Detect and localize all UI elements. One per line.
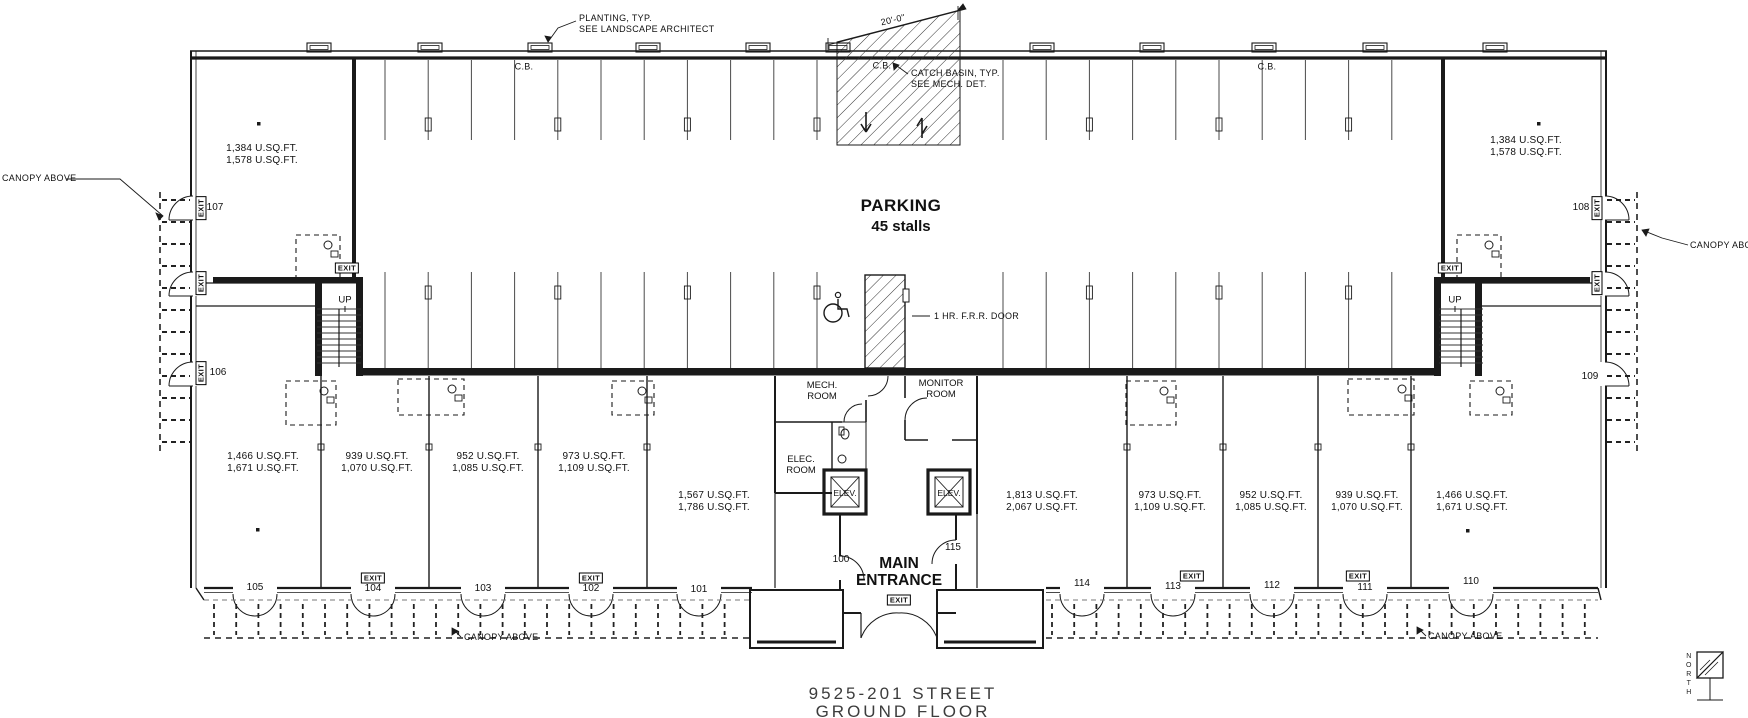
unit-105-sqft-1: 1,466 U.SQ.FT.: [227, 451, 299, 463]
unit-107-sqft-1: 1,384 U.SQ.FT.: [226, 143, 298, 155]
mech-room-label: MECH.ROOM: [807, 380, 838, 402]
canopy-above-south-west-label: CANOPY ABOVE: [464, 632, 538, 643]
exit-badge-right-corridor: EXIT: [1438, 263, 1462, 274]
exit-badge-111: EXIT: [1346, 571, 1370, 582]
unit-108-sqft-1: 1,384 U.SQ.FT.: [1490, 135, 1562, 147]
catch-basin-right-label: C.B.: [1258, 62, 1277, 73]
unit-105-sqft-2: 1,671 U.SQ.FT.: [227, 463, 299, 475]
unit-101-number: 101: [691, 584, 708, 596]
main-entrance-line1: MAIN: [879, 555, 919, 573]
catch-basin-note-line1: CATCH BASIN, TYP.: [911, 68, 1000, 79]
exit-badge-113: EXIT: [1180, 571, 1204, 582]
drawing-title-floor: GROUND FLOOR: [816, 702, 991, 718]
unit-114-number: 114: [1074, 578, 1090, 590]
elec-room-label: ELEC.ROOM: [786, 454, 816, 476]
monitor-room-label: MONITORROOM: [919, 378, 964, 400]
exit-badge-107: EXIT: [196, 196, 207, 220]
main-entrance-line2: ENTRANCE: [856, 572, 942, 590]
unit-104-sqft-1: 939 U.SQ.FT.: [346, 451, 409, 463]
unit-100-number: 100: [833, 554, 850, 566]
unit-102-number: 102: [583, 583, 600, 595]
unit-110-sqft-2: 1,671 U.SQ.FT.: [1436, 502, 1508, 514]
exit-badge-main-entrance: EXIT: [887, 595, 911, 606]
unit-111-sqft-1: 939 U.SQ.FT.: [1336, 490, 1399, 502]
unit-103-sqft-1: 952 U.SQ.FT.: [457, 451, 520, 463]
north-arrow-label: NORTH: [1684, 653, 1692, 711]
unit-114-sqft-2: 2,067 U.SQ.FT.: [1006, 502, 1078, 514]
unit-101-sqft-1: 1,567 U.SQ.FT.: [678, 490, 750, 502]
exit-badge-104: EXIT: [361, 573, 385, 584]
planting-note-line1: PLANTING, TYP.: [579, 13, 652, 24]
unit-112-sqft-1: 952 U.SQ.FT.: [1240, 490, 1303, 502]
unit-110-sqft-1: 1,466 U.SQ.FT.: [1436, 490, 1508, 502]
canopy-above-east-label: CANOPY ABO: [1690, 240, 1748, 251]
unit-104-number: 104: [365, 583, 382, 595]
unit-108-sqft-2: 1,578 U.SQ.FT.: [1490, 147, 1562, 159]
floorplan-linework: [0, 0, 1748, 718]
unit-102-sqft-1: 973 U.SQ.FT.: [563, 451, 626, 463]
unit-103-number: 103: [475, 583, 492, 595]
parking-title: PARKING: [861, 196, 942, 216]
unit-111-sqft-2: 1,070 U.SQ.FT.: [1331, 502, 1403, 514]
unit-115-number: 115: [945, 542, 961, 554]
unit-107-sqft-2: 1,578 U.SQ.FT.: [226, 155, 298, 167]
stair-up-right-label: UP: [1448, 294, 1461, 305]
exit-badge-left-mid: EXIT: [196, 271, 207, 295]
unit-109-number: 109: [1582, 371, 1599, 383]
unit-101-sqft-2: 1,786 U.SQ.FT.: [678, 502, 750, 514]
unit-105-number: 105: [247, 582, 264, 594]
unit-113-sqft-2: 1,109 U.SQ.FT.: [1134, 502, 1206, 514]
elevator-right-label: ELEV.: [937, 488, 960, 498]
unit-110-number: 110: [1463, 576, 1479, 588]
stair-up-left-label: UP: [338, 294, 351, 305]
parking-stall-count: 45 stalls: [871, 218, 930, 236]
unit-103-sqft-2: 1,085 U.SQ.FT.: [452, 463, 524, 475]
unit-102-sqft-2: 1,109 U.SQ.FT.: [558, 463, 630, 475]
canopy-above-south-east-label: CANOPY ABOVE: [1428, 631, 1502, 642]
catch-basin-note-line2: SEE MECH. DET.: [911, 79, 987, 90]
unit-108-number: 108: [1573, 202, 1590, 214]
unit-106-number: 106: [210, 367, 227, 379]
unit-114-sqft-1: 1,813 U.SQ.FT.: [1006, 490, 1078, 502]
exit-badge-right-mid: EXIT: [1592, 271, 1603, 295]
frr-door-note: 1 HR. F.R.R. DOOR: [934, 311, 1019, 322]
exit-badge-106: EXIT: [196, 361, 207, 385]
canopy-above-west-label: CANOPY ABOVE: [2, 173, 76, 184]
exit-badge-102: EXIT: [579, 573, 603, 584]
unit-104-sqft-2: 1,070 U.SQ.FT.: [341, 463, 413, 475]
elevator-left-label: ELEV.: [833, 488, 856, 498]
catch-basin-left-label: C.B.: [515, 62, 534, 73]
exit-badge-108: EXIT: [1592, 196, 1603, 220]
unit-112-sqft-2: 1,085 U.SQ.FT.: [1235, 502, 1307, 514]
unit-113-number: 113: [1165, 581, 1181, 593]
unit-112-number: 112: [1264, 580, 1280, 592]
exit-badge-left-corridor: EXIT: [335, 263, 359, 274]
catch-basin-mid-label: C.B.: [873, 61, 892, 72]
unit-107-number: 107: [207, 202, 224, 214]
planting-note-line2: SEE LANDSCAPE ARCHITECT: [579, 24, 714, 35]
unit-113-sqft-1: 973 U.SQ.FT.: [1139, 490, 1202, 502]
floor-plan: PLANTING, TYP. SEE LANDSCAPE ARCHITECT 2…: [0, 0, 1748, 718]
unit-111-number: 111: [1357, 582, 1372, 594]
